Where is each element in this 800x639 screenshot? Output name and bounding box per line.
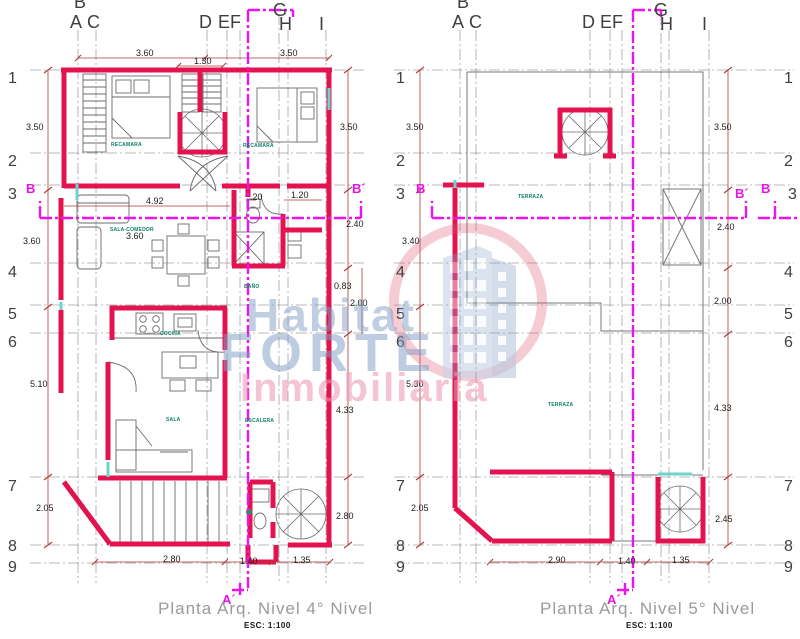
- room-label-bedroom-left: RECAMARA: [111, 142, 142, 148]
- row-8-left: 8: [8, 538, 17, 556]
- dim-right-2: 2.40: [346, 219, 364, 229]
- dim-left-1: 3.50: [26, 122, 44, 132]
- dim-inner-2: .20: [250, 192, 263, 202]
- axis-d-right: D: [582, 12, 595, 33]
- axis-e-right: E: [600, 12, 612, 33]
- row-4-left: 4: [8, 264, 17, 282]
- dim-left-4: 2.05: [36, 503, 54, 513]
- dim5-right-5: 2.45: [715, 514, 733, 524]
- axis-i-right: I: [702, 14, 707, 35]
- row-1-right: 1: [784, 70, 793, 88]
- row-1-mid: 1: [396, 70, 405, 88]
- axis-f-right: F: [612, 12, 623, 33]
- axis-c-right: C: [469, 12, 482, 33]
- dim-bot-2: 1.40: [240, 556, 258, 566]
- section-mark-bp-left: B´: [352, 181, 366, 196]
- row-6-left: 6: [8, 334, 17, 352]
- row-4-mid: 4: [396, 264, 405, 282]
- row-2-right: 2: [784, 153, 793, 171]
- section-mark-b-right: B: [416, 181, 425, 196]
- dim-top-3: 3.50: [280, 48, 298, 58]
- room-label-bedroom-right: RECAMARA: [243, 143, 274, 149]
- room-label-terraza-lower: TERRAZA: [548, 402, 573, 408]
- axis-h-left: H: [279, 14, 292, 35]
- row-4-right: 4: [784, 264, 793, 282]
- dim-inner-1: 4.92: [146, 196, 164, 206]
- section-mark-b-left: B: [26, 181, 35, 196]
- dim-bot-3: 1.35: [293, 555, 311, 565]
- dim-top-1: 3.60: [136, 48, 154, 58]
- dim5-left-1: 3.50: [406, 122, 424, 132]
- dim5-left-2: 3.40: [402, 236, 420, 246]
- axis-e-left: E: [218, 12, 230, 33]
- dim-top-2: 1.30: [194, 56, 212, 66]
- row-3-mid: 3: [396, 186, 405, 204]
- row-5-mid: 5: [396, 306, 405, 324]
- axis-i-left: I: [319, 14, 324, 35]
- axis-h-right: H: [660, 14, 673, 35]
- room-label-terraza-upper: TERRAZA: [518, 194, 543, 200]
- plan5-scale: ESC: 1:100: [626, 621, 673, 630]
- dim5-right-4: 4.33: [714, 403, 732, 413]
- section-mark-bp-right: B´: [735, 186, 749, 201]
- room-label-stairs: ESCALERA: [245, 418, 274, 424]
- axis-d-left: D: [199, 12, 212, 33]
- row-8-right: 8: [784, 538, 793, 556]
- room-label-sala-comedor: SALA-COMEDOR: [110, 227, 154, 233]
- room-label-kitchen: COCINA: [160, 331, 181, 337]
- row-7-left: 7: [8, 478, 17, 496]
- row-9-mid: 9: [396, 559, 405, 577]
- plan5-caption: Planta Arq. Nivel 5° Nivel: [540, 599, 755, 619]
- row-2-mid: 2: [396, 153, 405, 171]
- row-3-left: 3: [8, 186, 17, 204]
- dim5-left-4: 2.05: [411, 503, 429, 513]
- window-sills: [61, 88, 692, 477]
- dim5-bot-2: 1.40: [618, 556, 636, 566]
- drawing-sheet: B A C D E F G H I 1 2 3 4 5 6 7 8 9 3.50…: [0, 0, 800, 639]
- dim-left-3: 5.10: [30, 379, 48, 389]
- dim-right-4: 2.00: [350, 298, 368, 308]
- row-1-left: 1: [8, 70, 17, 88]
- plan4-caption: Planta Arq. Nivel 4° Nivel: [158, 599, 373, 619]
- dim-bot-1: 2.80: [163, 554, 181, 564]
- section-mark-b-edge: B: [761, 181, 770, 196]
- dim5-left-3: 5.30: [406, 379, 424, 389]
- dim-inner-3: 1.20: [291, 190, 309, 200]
- dim-left-2: 3.60: [23, 236, 41, 246]
- dim5-right-2: 2.40: [717, 222, 735, 232]
- dim5-right-1: 3.50: [714, 122, 732, 132]
- axis-a-right: A: [452, 12, 464, 33]
- row-6-mid: 6: [396, 334, 405, 352]
- dim-right-1: 3.50: [340, 122, 358, 132]
- axis-f-left: F: [230, 12, 241, 33]
- row-9-right: 9: [784, 559, 793, 577]
- dim-right-5: 4.33: [336, 405, 354, 415]
- row-6-right: 6: [784, 334, 793, 352]
- grid-lines: [30, 14, 794, 583]
- row-9-left: 9: [8, 559, 17, 577]
- dim-right-6: 2.80: [336, 511, 354, 521]
- room-label-bath: BAÑO: [244, 284, 260, 290]
- dim-right-3: 0.83: [334, 281, 352, 291]
- row-8-mid: 8: [396, 538, 405, 556]
- row-7-mid: 7: [396, 478, 405, 496]
- dim5-bot-3: 1.35: [672, 555, 690, 565]
- axis-c-left: C: [87, 12, 100, 33]
- dim5-bot-1: 2.90: [548, 555, 566, 565]
- dim5-right-3: 2.00: [714, 296, 732, 306]
- row-2-left: 2: [8, 153, 17, 171]
- room-label-sala: SALA: [166, 417, 180, 423]
- row-5-left: 5: [8, 306, 17, 324]
- row-3-right: 3: [788, 186, 797, 204]
- plan4-scale: ESC: 1:100: [244, 621, 291, 630]
- row-7-right: 7: [784, 478, 793, 496]
- row-5-right: 5: [784, 306, 793, 324]
- axis-a-left: A: [70, 12, 82, 33]
